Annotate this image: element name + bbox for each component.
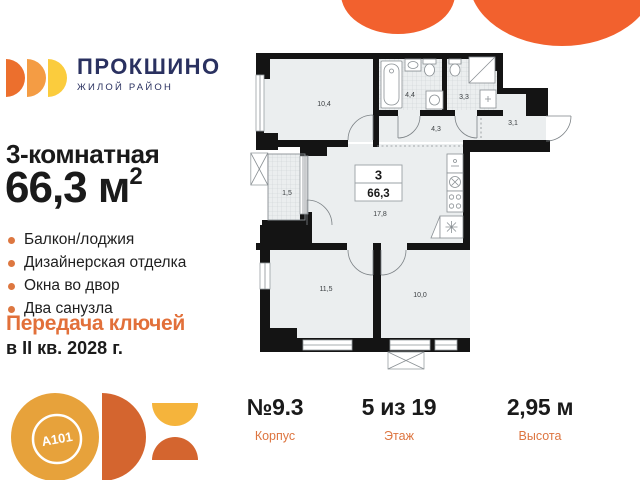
washing-machine-icon <box>426 91 443 109</box>
feature-label: Дизайнерская отделка <box>24 254 186 272</box>
stat-value: 2,95 м <box>485 394 595 421</box>
feature-label: Окна во двор <box>24 277 120 295</box>
stat-label: Высота <box>485 429 595 443</box>
stat-value: 5 из 19 <box>344 394 454 421</box>
bullet-icon <box>8 237 15 244</box>
logo-shape-1 <box>6 59 25 97</box>
toilet-icon <box>449 59 461 76</box>
plan-summary-box: 3 66,3 <box>355 165 402 201</box>
decor-halfdisc <box>102 393 146 480</box>
room-area-label: 17,8 <box>373 211 387 218</box>
room-area-label: 10,4 <box>317 101 331 108</box>
floor-plan: 3 66,3 10,4 4,4 3,3 4,3 3,1 1,5 17,8 11,… <box>250 40 585 390</box>
brand-tagline: ЖИЛОЙ РАЙОН <box>77 82 221 93</box>
listing-card: ПРОКШИНО ЖИЛОЙ РАЙОН 3-комнатная 66,3 м2… <box>0 0 640 480</box>
shower-icon <box>469 57 495 83</box>
logo-shape-2 <box>27 59 46 97</box>
feature-item: Дизайнерская отделка <box>8 254 186 272</box>
room-area-label: 3,1 <box>508 120 518 127</box>
room-area-label: 4,4 <box>405 92 415 99</box>
brand-logo-icon <box>4 56 68 100</box>
decor-circle-small <box>341 0 455 34</box>
decor-dome-orange <box>152 437 198 460</box>
feature-list: Балкон/лоджия Дизайнерская отделка Окна … <box>8 231 186 323</box>
bullet-icon <box>8 283 15 290</box>
kitchen-burner-icon <box>447 173 463 191</box>
feature-label: Балкон/лоджия <box>24 231 134 249</box>
room-area-label: 4,3 <box>431 126 441 133</box>
feature-item: Окна во двор <box>8 277 186 295</box>
stat-building: №9.3 Корпус <box>220 394 330 443</box>
developer-logo: A101 <box>0 385 220 480</box>
brand-logo: ПРОКШИНО ЖИЛОЙ РАЙОН <box>4 56 221 100</box>
handover-term: в II кв. 2028 г. <box>6 338 123 359</box>
toilet-icon <box>423 59 436 76</box>
stat-label: Корпус <box>220 429 330 443</box>
stat-height: 2,95 м Высота <box>485 394 595 443</box>
logo-shape-3 <box>48 59 67 97</box>
bullet-icon <box>8 260 15 267</box>
stat-label: Этаж <box>344 429 454 443</box>
handover-label: Передача ключей <box>6 312 185 336</box>
brand-name: ПРОКШИНО <box>77 56 221 78</box>
sink-icon <box>405 59 421 71</box>
room-area-label: 1,5 <box>282 190 292 197</box>
total-area: 66,3 м2 <box>5 166 142 210</box>
area-value: 66,3 м <box>5 163 129 212</box>
area-superscript: 2 <box>129 163 141 190</box>
stove-icon <box>447 191 463 212</box>
room-area-label: 3,3 <box>459 94 469 101</box>
stat-floor: 5 из 19 Этаж <box>344 394 454 443</box>
room-area-label: 11,5 <box>319 286 332 293</box>
flat-area-label: 66,3 <box>367 188 389 200</box>
washer-icon <box>480 90 496 108</box>
room-area-label: 10,0 <box>413 292 427 299</box>
stat-value: №9.3 <box>220 394 330 421</box>
bathtub-icon <box>381 61 402 108</box>
feature-item: Балкон/лоджия <box>8 231 186 249</box>
kitchen-sink-icon <box>447 154 463 173</box>
flat-type-label: 3 <box>375 168 382 183</box>
decor-fan-yellow <box>152 403 198 426</box>
